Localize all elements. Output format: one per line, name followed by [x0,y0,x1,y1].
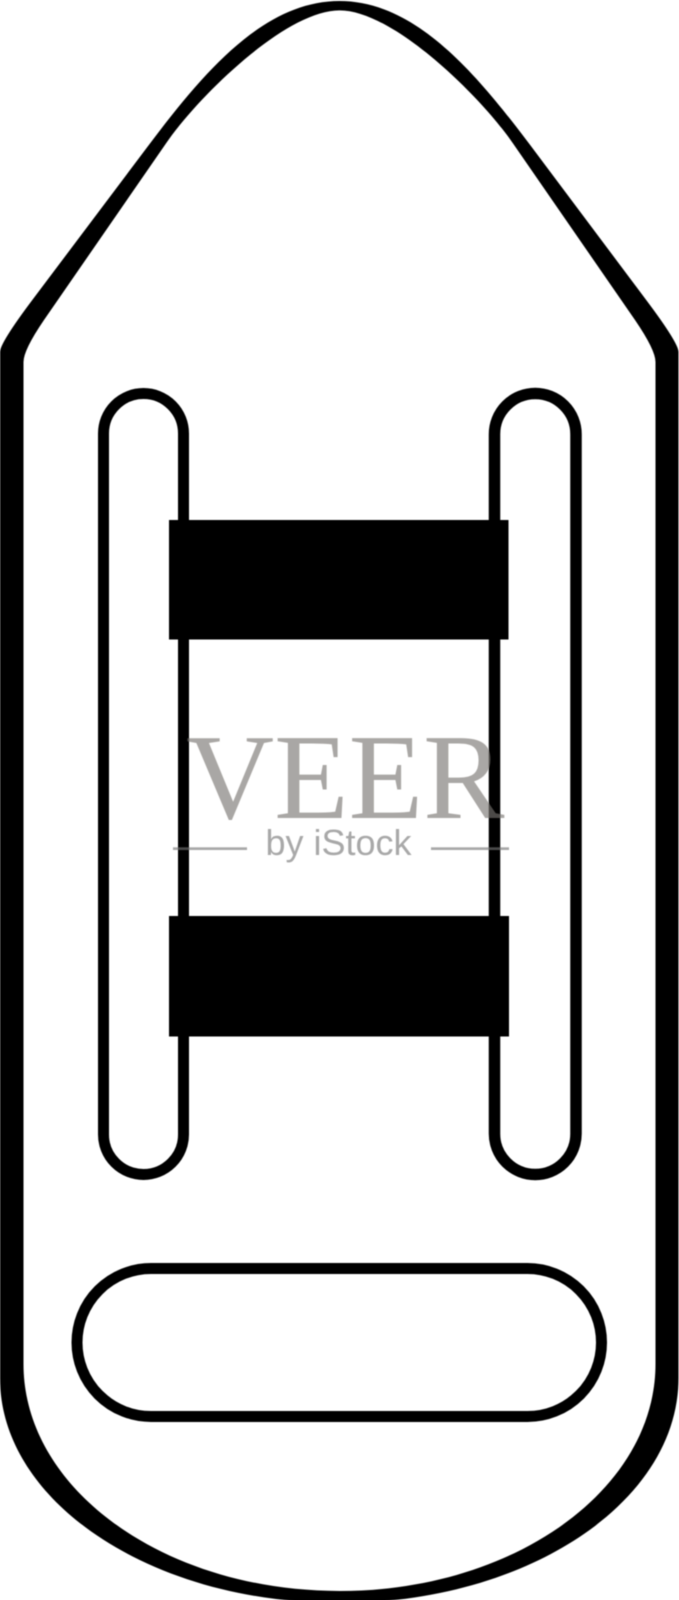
svg-text:by iStock: by iStock [265,822,412,863]
